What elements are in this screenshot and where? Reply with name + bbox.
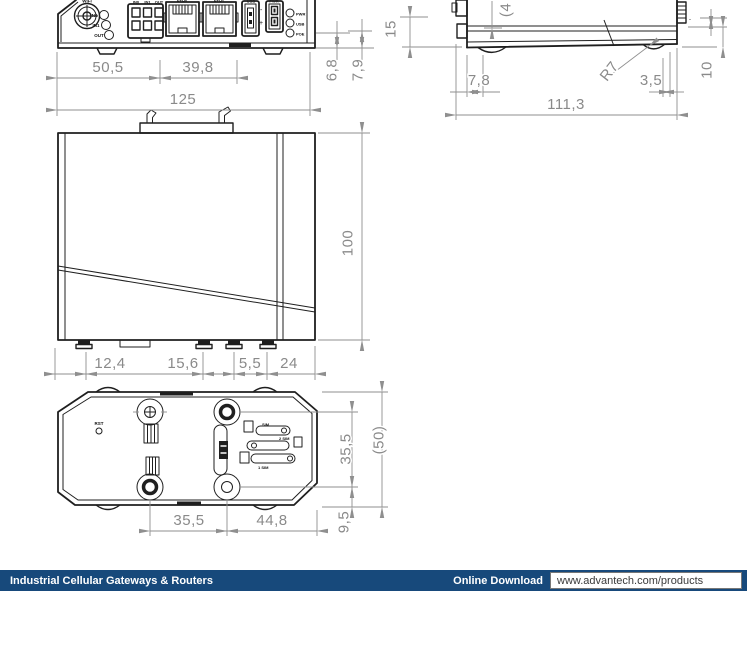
io-indicators: IN0 IN1 OUT (90, 11, 113, 40)
dim-bottom-h1: 35,5 (337, 433, 354, 464)
dim-left-height: 100 (339, 230, 356, 257)
dim-bottom-w1: 35,5 (173, 512, 204, 529)
dim-bottom-w2: 44,8 (256, 512, 287, 529)
dimension-texts: 50,5 39,8 125 6,8 7,9 15 (4 7,8 R7 3,5 1… (92, 3, 715, 533)
left-side-view (58, 107, 315, 349)
technical-drawing: WiFi IN0 IN1 OUT IN0 IN1 OUT ETH0 (0, 0, 750, 650)
io-label-in1: IN1 (92, 23, 100, 28)
foot-right (263, 48, 283, 54)
io-label-out: OUT (94, 33, 104, 38)
foot-left (97, 48, 117, 54)
dim-bottom-h3: 9,5 (335, 511, 352, 533)
din-rail-clip (140, 107, 233, 133)
eth0-port: ETH0 (164, 0, 201, 36)
dim-front-w1: 50,5 (92, 59, 123, 76)
polarity-plus: + (259, 20, 263, 27)
eth1-port: ETH1 (201, 0, 238, 36)
din-clip-tab-top (456, 0, 467, 16)
dim-bottom-h2: (50) (370, 426, 387, 455)
led-label-pwr: PWR (296, 12, 305, 17)
dim-left-b2: 15,6 (167, 355, 198, 372)
led-label-poe: POE (296, 32, 305, 37)
sim-label-1: 2 SIM (279, 436, 290, 441)
vent-slots (144, 424, 228, 475)
side-view: - (452, 0, 691, 52)
dim-front-h2: 7,9 (349, 59, 366, 81)
din-clip-tab-bottom (457, 24, 467, 38)
dim-side-total: 111,3 (547, 96, 585, 113)
io-terminal-connector: IN0 IN1 OUT (128, 0, 164, 42)
antenna-minus-mark: - (689, 17, 691, 23)
online-download-label: Online Download (453, 575, 543, 587)
status-leds: PWR USB POE (286, 9, 305, 37)
footer-category: Industrial Cellular Gateways & Routers (0, 575, 213, 587)
antenna-label: WiFi (82, 0, 91, 4)
led-label-usb: USB (296, 22, 305, 27)
dim-side-cut: (4 (497, 3, 514, 17)
footer-bar: Industrial Cellular Gateways & Routers O… (0, 570, 747, 591)
sim-slot-icons: SIM 2 SIM 1 SIM (240, 421, 302, 470)
datasheet-dimension-page: WiFi IN0 IN1 OUT IN0 IN1 OUT ETH0 (0, 0, 750, 650)
bottom-slot (229, 44, 251, 48)
bottom-view: RST SIM 2 SIM 1 SIM (58, 388, 317, 510)
dim-side-rear: 3,5 (640, 72, 662, 89)
reset-button: RST (95, 421, 104, 434)
dim-left-b4: 24 (280, 355, 298, 372)
dim-left-b1: 12,4 (94, 355, 125, 372)
front-panel-view: WiFi IN0 IN1 OUT IN0 IN1 OUT ETH0 (58, 0, 315, 54)
reset-label: RST (95, 421, 104, 426)
bottom-feet (76, 340, 276, 349)
polarity-minus: - (260, 7, 263, 14)
antenna-side: - (677, 2, 691, 23)
dim-side-radius: R7 (597, 58, 623, 84)
dim-front-w2: 39,8 (182, 59, 213, 76)
dim-side-front: 7,8 (468, 72, 490, 89)
usb-port: USB (242, 0, 259, 36)
sim-label-2: 1 SIM (258, 465, 269, 470)
dim-front-total: 125 (170, 91, 197, 108)
dim-front-h1: 6,8 (323, 59, 340, 81)
power-connector: PWR - + (259, 0, 283, 32)
io-label-in0: IN0 (90, 13, 98, 18)
product-url[interactable]: www.advantech.com/products (550, 572, 742, 589)
dim-side-right: 10 (698, 61, 715, 79)
dim-left-b3: 5,5 (239, 355, 261, 372)
dim-side-left: 15 (382, 20, 399, 38)
